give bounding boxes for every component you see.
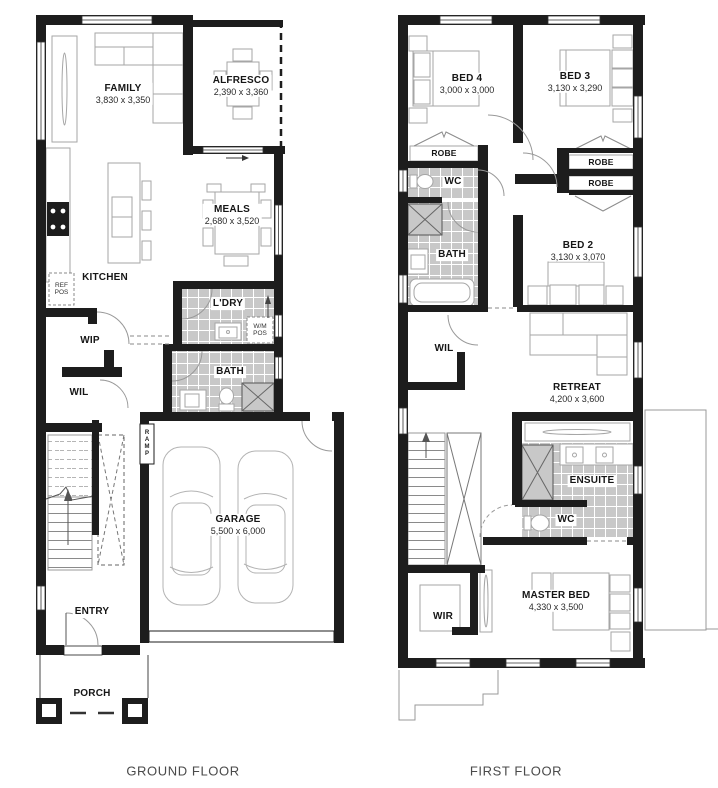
room-dims: 4,200 x 3,600 bbox=[550, 394, 605, 405]
room-label-bed3: BED 33,130 x 3,290 bbox=[546, 71, 605, 93]
room-label-bed4: BED 43,000 x 3,000 bbox=[438, 73, 497, 95]
room-label-wir: WIR bbox=[431, 611, 455, 623]
room-name: BED 2 bbox=[551, 240, 606, 252]
room-label-master-bed: MASTER BED4,330 x 3,500 bbox=[520, 590, 592, 612]
room-name: L'DRY bbox=[213, 298, 243, 310]
room-label-wil-first: WIL bbox=[433, 343, 456, 355]
room-label-robe-bed4: ROBE bbox=[429, 148, 458, 158]
floor-plan-graphics bbox=[0, 0, 718, 788]
room-label-bath-first: BATH bbox=[436, 249, 468, 261]
room-name: ROBE bbox=[588, 178, 613, 188]
room-label-kitchen: KITCHEN bbox=[80, 272, 130, 284]
room-name: WIR bbox=[433, 611, 453, 623]
room-name: WIL bbox=[435, 343, 454, 355]
floor-plan-canvas: FAMILY3,830 x 3,350 ALFRESCO2,390 x 3,36… bbox=[0, 0, 718, 788]
room-label-bath-ground: BATH bbox=[214, 366, 246, 378]
room-name: WIP bbox=[80, 335, 100, 347]
room-label-retreat: RETREAT4,200 x 3,600 bbox=[548, 382, 607, 404]
room-label-entry: ENTRY bbox=[73, 606, 112, 618]
room-label-alfresco: ALFRESCO2,390 x 3,360 bbox=[211, 75, 272, 97]
room-label-bed2: BED 23,130 x 3,070 bbox=[549, 240, 608, 262]
ramp-label: RAMP bbox=[144, 430, 150, 458]
room-name: MEALS bbox=[205, 204, 260, 216]
caption-first-floor: FIRST FLOOR bbox=[470, 764, 562, 779]
room-name: GARAGE bbox=[211, 514, 266, 526]
room-label-wil-ground: WIL bbox=[68, 387, 91, 399]
room-dims: 3,830 x 3,350 bbox=[96, 95, 151, 106]
room-label-garage: GARAGE5,500 x 6,000 bbox=[209, 514, 268, 536]
room-name: MASTER BED bbox=[522, 590, 590, 602]
room-dims: 4,330 x 3,500 bbox=[522, 602, 590, 613]
room-dims: 2,680 x 3,520 bbox=[205, 216, 260, 227]
room-label-robe-b: ROBE bbox=[586, 178, 615, 188]
room-name: ROBE bbox=[431, 148, 456, 158]
room-name: FAMILY bbox=[96, 83, 151, 95]
room-name: BED 3 bbox=[548, 71, 603, 83]
room-label-wc-lower: WC bbox=[555, 514, 576, 526]
room-dims: 2,390 x 3,360 bbox=[213, 87, 270, 98]
room-name: BED 4 bbox=[440, 73, 495, 85]
ref-pos-label: REF POS bbox=[55, 282, 69, 296]
room-label-robe-a: ROBE bbox=[586, 157, 615, 167]
room-name: BATH bbox=[216, 366, 244, 378]
room-dims: 5,500 x 6,000 bbox=[211, 526, 266, 537]
room-label-porch: PORCH bbox=[71, 688, 112, 700]
room-name: WIL bbox=[70, 387, 89, 399]
room-name: WC bbox=[557, 514, 574, 526]
room-label-family: FAMILY3,830 x 3,350 bbox=[94, 83, 153, 105]
room-label-wc-upper: WC bbox=[442, 176, 463, 188]
room-label-ldry: L'DRY bbox=[211, 298, 245, 310]
room-label-meals: MEALS2,680 x 3,520 bbox=[203, 204, 262, 226]
wm-pos-label: W/M POS bbox=[253, 323, 267, 337]
room-name: RETREAT bbox=[550, 382, 605, 394]
room-name: ALFRESCO bbox=[213, 75, 270, 87]
room-dims: 3,130 x 3,290 bbox=[548, 83, 603, 94]
room-label-wip: WIP bbox=[78, 335, 102, 347]
room-name: ENTRY bbox=[75, 606, 110, 618]
room-name: WC bbox=[444, 176, 461, 188]
room-name: PORCH bbox=[73, 688, 110, 700]
room-name: ROBE bbox=[588, 157, 613, 167]
room-dims: 3,000 x 3,000 bbox=[440, 85, 495, 96]
room-name: KITCHEN bbox=[82, 272, 128, 284]
room-name: BATH bbox=[438, 249, 466, 261]
room-label-ensuite: ENSUITE bbox=[568, 475, 617, 487]
room-dims: 3,130 x 3,070 bbox=[551, 252, 606, 263]
room-name: ENSUITE bbox=[570, 475, 615, 487]
caption-ground-floor: GROUND FLOOR bbox=[126, 764, 239, 779]
